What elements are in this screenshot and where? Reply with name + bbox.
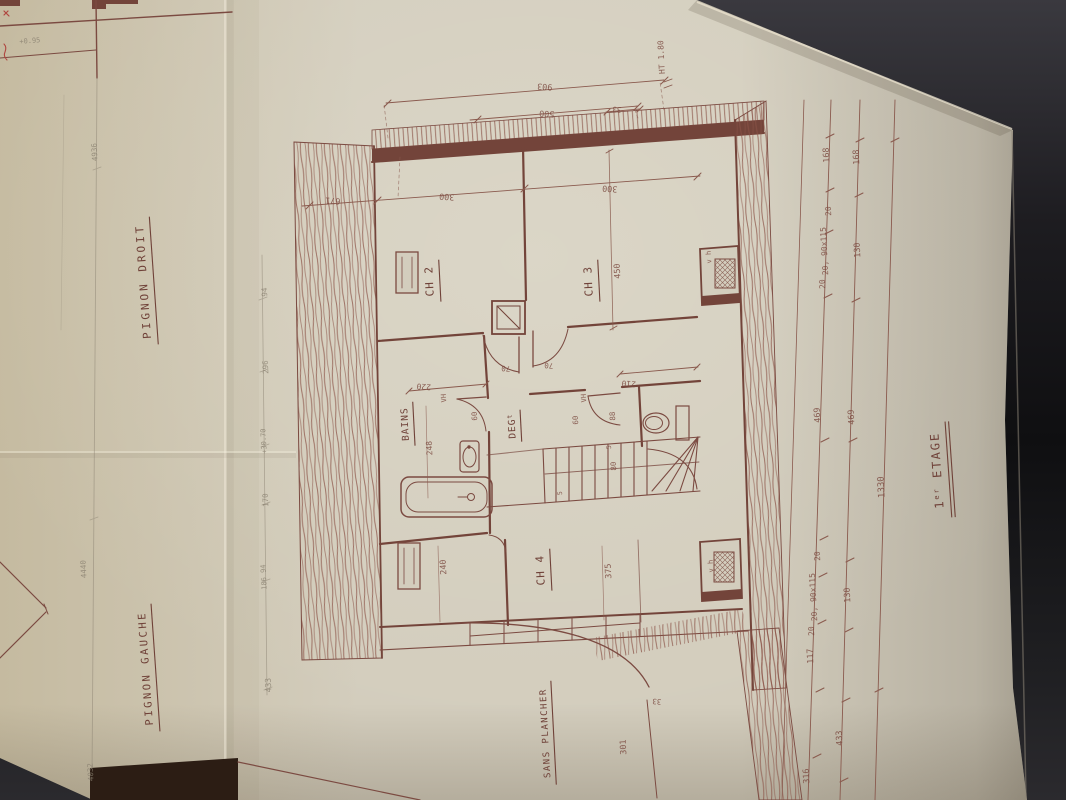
svg-text:60: 60	[571, 415, 580, 425]
svg-text:33: 33	[652, 697, 662, 707]
svg-text:4936: 4936	[90, 142, 100, 161]
svg-text:70: 70	[544, 361, 554, 371]
svg-text:CH 2: CH 2	[422, 266, 437, 297]
svg-text:170: 170	[261, 493, 271, 507]
dim-433-right: 433	[835, 730, 846, 746]
dim-433-left: 433	[264, 677, 274, 692]
dim-316: 316	[802, 768, 813, 784]
svg-text:v h: v h	[707, 560, 716, 573]
dim-4440: 4440	[79, 559, 89, 578]
svg-text:70: 70	[501, 364, 511, 374]
anno-vh-lower: v h	[707, 560, 716, 573]
dim-450: 450	[613, 263, 624, 279]
anno-ht-180: HT 1.80	[656, 40, 667, 74]
svg-text:60: 60	[470, 411, 479, 421]
svg-text:903: 903	[537, 80, 553, 91]
dim-240: 240	[439, 559, 450, 575]
svg-text:4440: 4440	[79, 559, 89, 578]
dim-18694: 186 94	[259, 564, 268, 590]
dim-375: 375	[604, 563, 615, 579]
svg-text:433: 433	[264, 677, 274, 692]
svg-text:VH: VH	[580, 394, 588, 403]
dim-168-b: 168	[852, 149, 863, 165]
dim-1330: 1330	[876, 476, 887, 498]
svg-text:CH 4: CH 4	[533, 555, 548, 586]
svg-text:+0.95: +0.95	[19, 36, 41, 45]
svg-text:220: 220	[416, 381, 431, 391]
svg-text:33: 33	[612, 105, 622, 115]
dim-70-left: 70	[501, 364, 511, 374]
svg-text:v h: v h	[705, 251, 714, 264]
svg-text:4032: 4032	[86, 763, 96, 782]
dim-300-ch2: 300	[439, 190, 455, 201]
dim-60-wc: 60	[571, 415, 580, 425]
dim-301: 301	[619, 739, 630, 755]
svg-text:240: 240	[439, 559, 450, 575]
anno-vh-upper: v h	[705, 251, 714, 264]
dim-130-a: 130	[853, 242, 864, 258]
dim-469-b: 469	[847, 409, 858, 425]
svg-text:88: 88	[608, 411, 617, 421]
photo-of-floor-plan: { "document": { "type": "architectural f…	[0, 0, 1066, 800]
svg-text:130: 130	[853, 242, 864, 258]
dim-248: 248	[425, 440, 435, 455]
dim-671: 671	[325, 194, 341, 205]
dim-4032: 4032	[86, 763, 96, 782]
dim-469-a: 469	[813, 407, 824, 423]
svg-text:469: 469	[847, 409, 858, 425]
svg-text:HT 1.80: HT 1.80	[656, 40, 667, 74]
svg-text:248: 248	[425, 440, 435, 455]
dim-80: 80	[609, 461, 618, 471]
flue-square	[492, 301, 525, 334]
dim-94: 94	[260, 287, 269, 297]
svg-text:433: 433	[835, 730, 846, 746]
svg-text:130: 130	[843, 587, 854, 603]
svg-text:20: 20	[813, 551, 823, 561]
fold-crease-horizontal	[0, 451, 296, 458]
svg-text:296: 296	[261, 360, 271, 374]
svg-text:CH 3: CH 3	[581, 266, 596, 297]
svg-text:186 94: 186 94	[259, 564, 268, 590]
svg-text:469: 469	[813, 407, 824, 423]
dim-5a: 5	[556, 491, 564, 495]
anno-vh-wc: VH	[580, 394, 588, 403]
dim-168-a: 168	[822, 147, 833, 163]
dim-130-b: 130	[843, 587, 854, 603]
dim-117: 117	[806, 648, 817, 664]
anno-vh-bains: VH	[440, 394, 448, 403]
svg-text:94: 94	[260, 287, 269, 297]
svg-text:20: 20	[818, 279, 828, 289]
dim-60-bains: 60	[470, 411, 479, 421]
svg-text:117: 117	[806, 648, 817, 664]
svg-text:300: 300	[602, 182, 618, 193]
svg-text:20: 20	[807, 626, 817, 636]
svg-text:500: 500	[539, 107, 555, 118]
svg-text:BAINS: BAINS	[399, 407, 412, 441]
dim-20-d: 20	[807, 626, 817, 636]
dim-88: 88	[608, 411, 617, 421]
plan-photo-svg: PIGNON DROITPIGNON GAUCHE1er ETAGECH 2CH…	[0, 0, 1066, 800]
dim-296: 296	[261, 360, 271, 374]
svg-text:450: 450	[613, 263, 624, 279]
svg-text:316: 316	[802, 768, 813, 784]
svg-text:375: 375	[604, 563, 615, 579]
dim-500: 500	[539, 107, 555, 118]
svg-text:20: 20	[824, 206, 834, 216]
dim-5b: 5	[605, 445, 613, 449]
dim-4936: 4936	[90, 142, 100, 161]
svg-text:5: 5	[605, 445, 613, 449]
dim-300-ch3: 300	[602, 182, 618, 193]
svg-text:+30.70: +30.70	[259, 428, 268, 454]
dim-903: 903	[537, 80, 553, 91]
svg-text:5: 5	[556, 491, 564, 495]
svg-text:168: 168	[852, 149, 863, 165]
svg-text:300: 300	[439, 190, 455, 201]
svg-text:671: 671	[325, 194, 341, 205]
svg-text:168: 168	[822, 147, 833, 163]
dim-170: 170	[261, 493, 271, 507]
dim-20-b: 20	[818, 279, 828, 289]
dim-20-a: 20	[824, 206, 834, 216]
fold-crease-vertical	[224, 0, 259, 800]
dim-20-c: 20	[813, 551, 823, 561]
dim-220: 220	[416, 381, 431, 391]
svg-text:210: 210	[621, 378, 636, 388]
dim-210: 210	[621, 378, 636, 388]
dim-33-bottom: 33	[652, 697, 662, 707]
svg-text:VH: VH	[440, 394, 448, 403]
dim-3070: +30.70	[259, 428, 268, 454]
anno-level: +0.95	[19, 36, 41, 45]
svg-text:1330: 1330	[876, 476, 887, 498]
svg-text:80: 80	[609, 461, 618, 471]
svg-text:301: 301	[619, 739, 630, 755]
dim-70-right: 70	[544, 361, 554, 371]
dim-33-top: 33	[612, 105, 622, 115]
